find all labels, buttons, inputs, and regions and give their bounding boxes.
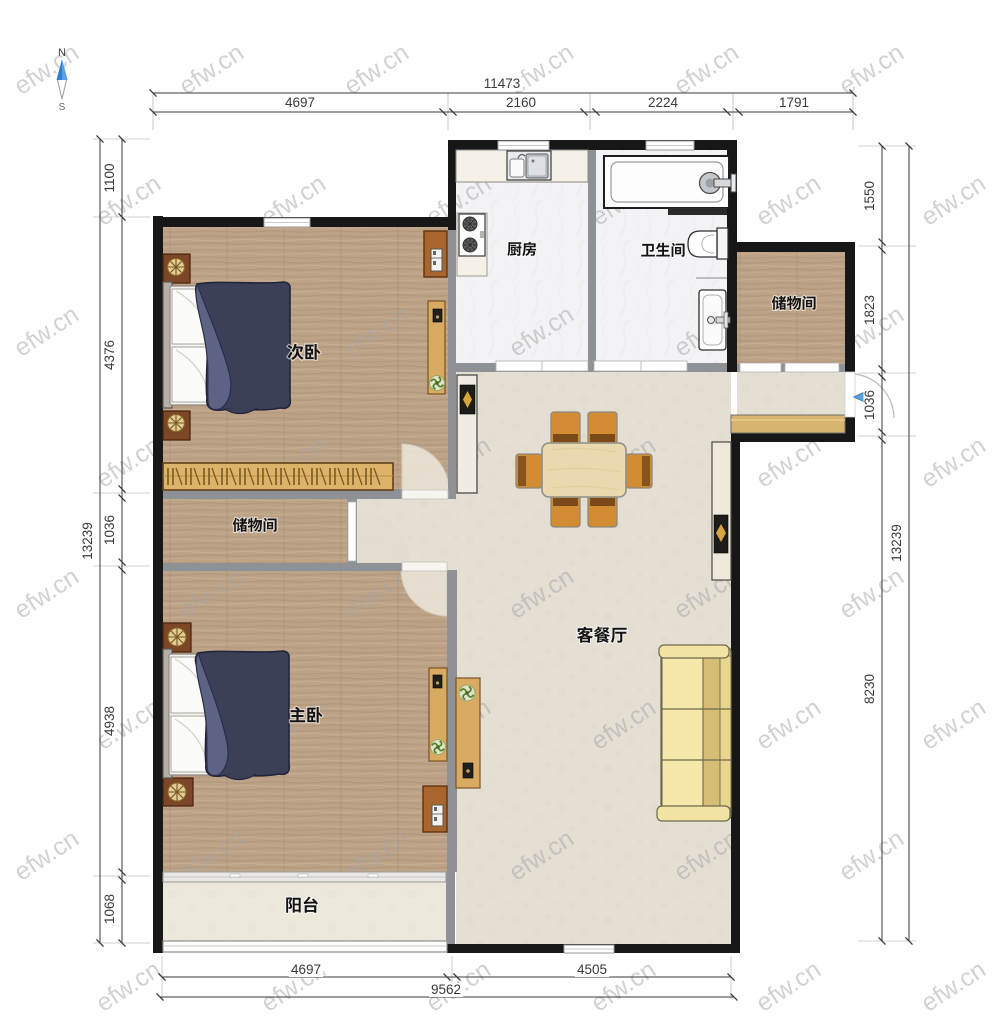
svg-text:4697: 4697 (291, 962, 321, 977)
svg-text:8230: 8230 (862, 674, 877, 704)
svg-text:13239: 13239 (80, 522, 95, 560)
svg-text:4505: 4505 (577, 962, 607, 977)
svg-text:4938: 4938 (102, 706, 117, 736)
svg-text:N: N (58, 47, 66, 59)
svg-text:S: S (59, 102, 66, 113)
svg-text:2224: 2224 (648, 95, 679, 110)
svg-text:2160: 2160 (506, 95, 536, 110)
svg-text:4697: 4697 (285, 95, 315, 110)
svg-text:9562: 9562 (431, 982, 461, 997)
svg-text:1100: 1100 (102, 163, 117, 192)
svg-text:1550: 1550 (862, 181, 877, 211)
svg-text:1791: 1791 (779, 95, 809, 110)
svg-text:1823: 1823 (862, 295, 877, 325)
svg-text:4376: 4376 (102, 340, 117, 370)
svg-text:1036: 1036 (862, 390, 877, 420)
svg-text:1068: 1068 (102, 894, 117, 924)
svg-text:11473: 11473 (484, 76, 521, 91)
svg-text:13239: 13239 (889, 524, 904, 562)
svg-text:1036: 1036 (102, 515, 117, 545)
